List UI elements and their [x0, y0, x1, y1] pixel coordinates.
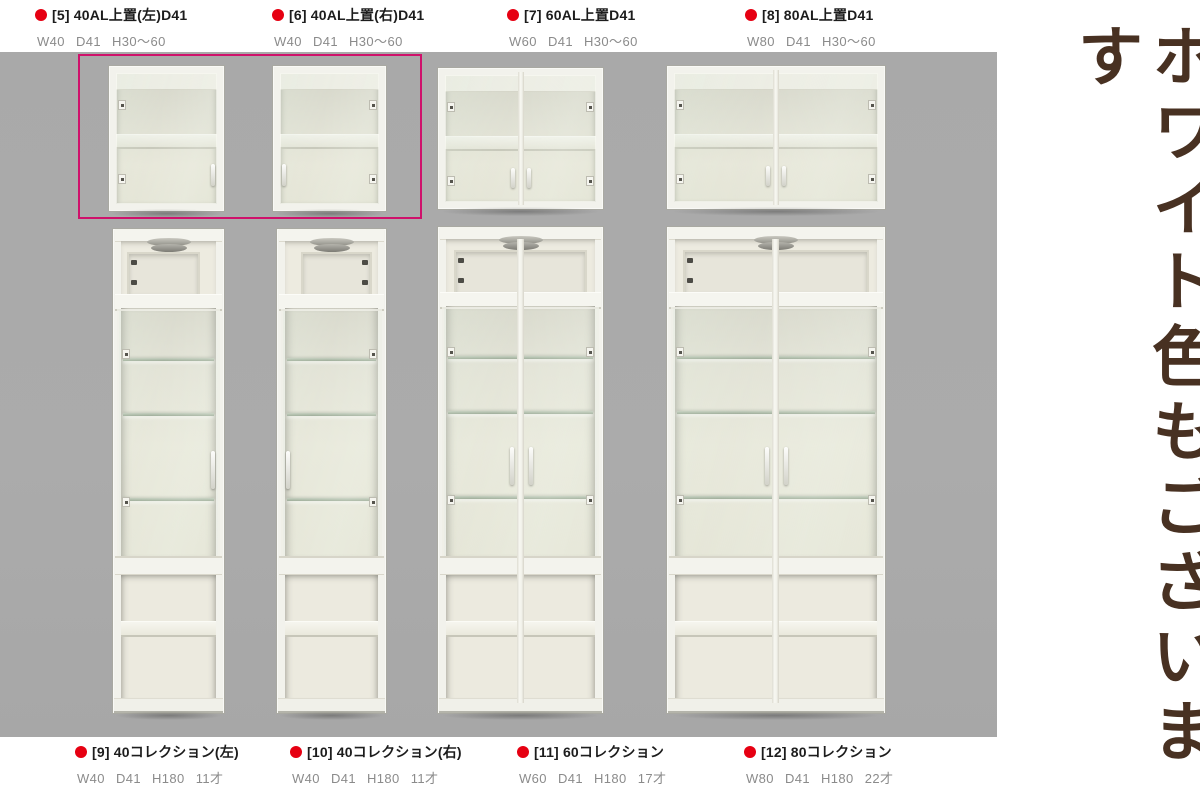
door-handle	[286, 451, 290, 489]
product-dimensions: W40 D41 H30～60	[35, 31, 187, 50]
door-divider	[772, 239, 779, 703]
door-handle	[765, 447, 769, 485]
product-number: [6]	[289, 7, 307, 23]
product-name-line: [12] 80コレクション	[744, 743, 893, 761]
product-label-6: [6] 40AL上置(右)D41 W40 D41 H30～60	[272, 6, 424, 50]
cabinet-base	[114, 698, 223, 713]
product-dimensions: W60 D41 H30～60	[507, 31, 638, 50]
hinge-icon	[586, 102, 594, 112]
product-name: 80コレクション	[791, 742, 892, 762]
product-name: 40AL上置(左)D41	[74, 5, 188, 25]
tall-cabinet-9	[112, 228, 225, 714]
hinge-icon	[676, 347, 684, 357]
tall-cabinet-11	[437, 226, 604, 714]
hinge-icon	[362, 280, 368, 285]
hinge-icon	[122, 497, 130, 507]
hinge-icon	[447, 176, 455, 186]
door-handle	[510, 447, 514, 485]
hinge-icon	[676, 174, 684, 184]
product-number: [10]	[307, 744, 333, 760]
hinge-icon	[447, 102, 455, 112]
hinge-icon	[586, 347, 594, 357]
upper-cabinet-8	[666, 65, 886, 210]
cabinet-base	[278, 698, 385, 713]
product-number: [11]	[534, 744, 559, 760]
red-bullet-icon	[272, 9, 284, 21]
hinge-icon	[868, 174, 876, 184]
door-bottom-rail	[279, 556, 384, 575]
cabinet-shelf	[285, 621, 378, 637]
door-handle	[527, 168, 531, 188]
hinge-icon	[458, 278, 464, 283]
door-handle	[784, 447, 788, 485]
hinge-icon	[369, 174, 377, 184]
hinge-icon	[369, 497, 377, 507]
downlight-icon	[310, 238, 354, 253]
door-divider	[518, 72, 524, 205]
back-panel	[301, 252, 372, 297]
product-name-line: [9] 40コレクション(左)	[75, 743, 239, 761]
hinge-icon	[362, 260, 368, 265]
hinge-icon	[447, 495, 455, 505]
upper-cabinet-6	[272, 65, 387, 212]
product-dimensions: W60 D41 H180 17才	[517, 768, 666, 787]
vertical-banner-text: ホワイト色もございます	[1068, 22, 1200, 782]
door-bottom-rail	[115, 556, 222, 575]
product-label-12: [12] 80コレクション W80 D41 H180 22才	[744, 743, 893, 787]
hinge-icon	[458, 258, 464, 263]
hinge-icon	[687, 258, 693, 263]
product-number: [8]	[762, 7, 780, 23]
product-label-5: [5] 40AL上置(左)D41 W40 D41 H30～60	[35, 6, 187, 50]
product-dimensions: W40 D41 H180 11才	[290, 768, 462, 787]
door-handle	[282, 164, 286, 186]
hinge-icon	[118, 174, 126, 184]
product-name-line: [10] 40コレクション(右)	[290, 743, 462, 761]
hinge-icon	[676, 100, 684, 110]
product-name: 60AL上置D41	[546, 5, 636, 25]
upper-cabinet-7	[437, 67, 604, 210]
hinge-icon	[122, 349, 130, 359]
glass-door	[281, 309, 382, 561]
product-dimensions: W40 D41 H180 11才	[75, 768, 239, 787]
product-label-9: [9] 40コレクション(左) W40 D41 H180 11才	[75, 743, 239, 787]
hinge-icon	[868, 347, 876, 357]
hinge-icon	[676, 495, 684, 505]
product-label-8: [8] 80AL上置D41 W80 D41 H30～60	[745, 6, 876, 50]
door-handle	[211, 164, 215, 186]
red-bullet-icon	[745, 9, 757, 21]
product-number: [12]	[761, 744, 787, 760]
product-name: 60コレクション	[563, 742, 664, 762]
door-divider	[773, 70, 779, 205]
product-name: 40AL上置(右)D41	[311, 5, 425, 25]
hinge-icon	[131, 260, 137, 265]
hinge-icon	[868, 100, 876, 110]
hinge-icon	[687, 278, 693, 283]
product-name-line: [8] 80AL上置D41	[745, 6, 876, 24]
hinge-icon	[369, 100, 377, 110]
product-name-line: [5] 40AL上置(左)D41	[35, 6, 187, 24]
product-name: 80AL上置D41	[784, 5, 874, 25]
hinge-icon	[586, 495, 594, 505]
door-handle	[782, 166, 786, 186]
product-photo-panel	[0, 52, 997, 737]
door-handle	[529, 447, 533, 485]
door-divider	[517, 239, 524, 703]
door-handle	[766, 166, 770, 186]
product-name-line: [6] 40AL上置(右)D41	[272, 6, 424, 24]
tall-cabinet-12	[666, 226, 886, 714]
product-label-10: [10] 40コレクション(右) W40 D41 H180 11才	[290, 743, 462, 787]
red-bullet-icon	[35, 9, 47, 21]
back-panel	[127, 252, 200, 297]
hinge-icon	[369, 349, 377, 359]
glass-door	[116, 73, 217, 204]
open-shelf-section	[285, 575, 378, 701]
hinge-icon	[586, 176, 594, 186]
product-name: 40コレクション(左)	[114, 742, 239, 762]
hinge-icon	[868, 495, 876, 505]
product-dimensions: W40 D41 H30～60	[272, 31, 424, 50]
upper-cabinet-5	[108, 65, 225, 212]
product-dimensions: W80 D41 H180 22才	[744, 768, 893, 787]
product-dimensions: W80 D41 H30～60	[745, 31, 876, 50]
glass-door	[117, 309, 220, 561]
downlight-icon	[147, 238, 191, 253]
product-name-line: [11] 60コレクション	[517, 743, 666, 761]
red-bullet-icon	[744, 746, 756, 758]
light-compartment	[121, 241, 216, 294]
hinge-icon	[131, 280, 137, 285]
light-compartment	[285, 241, 378, 294]
hinge-icon	[447, 347, 455, 357]
door-handle	[511, 168, 515, 188]
tall-cabinet-10	[276, 228, 387, 714]
door-handle	[211, 451, 215, 489]
product-number: [5]	[52, 7, 70, 23]
hinge-icon	[118, 100, 126, 110]
product-number: [9]	[92, 744, 110, 760]
glass-door	[280, 73, 379, 204]
product-name-line: [7] 60AL上置D41	[507, 6, 638, 24]
red-bullet-icon	[507, 9, 519, 21]
product-label-7: [7] 60AL上置D41 W60 D41 H30～60	[507, 6, 638, 50]
product-name: 40コレクション(右)	[337, 742, 462, 762]
product-label-11: [11] 60コレクション W60 D41 H180 17才	[517, 743, 666, 787]
red-bullet-icon	[517, 746, 529, 758]
product-number: [7]	[524, 7, 542, 23]
cabinet-shelf	[121, 621, 216, 637]
open-shelf-section	[121, 575, 216, 701]
red-bullet-icon	[290, 746, 302, 758]
red-bullet-icon	[75, 746, 87, 758]
